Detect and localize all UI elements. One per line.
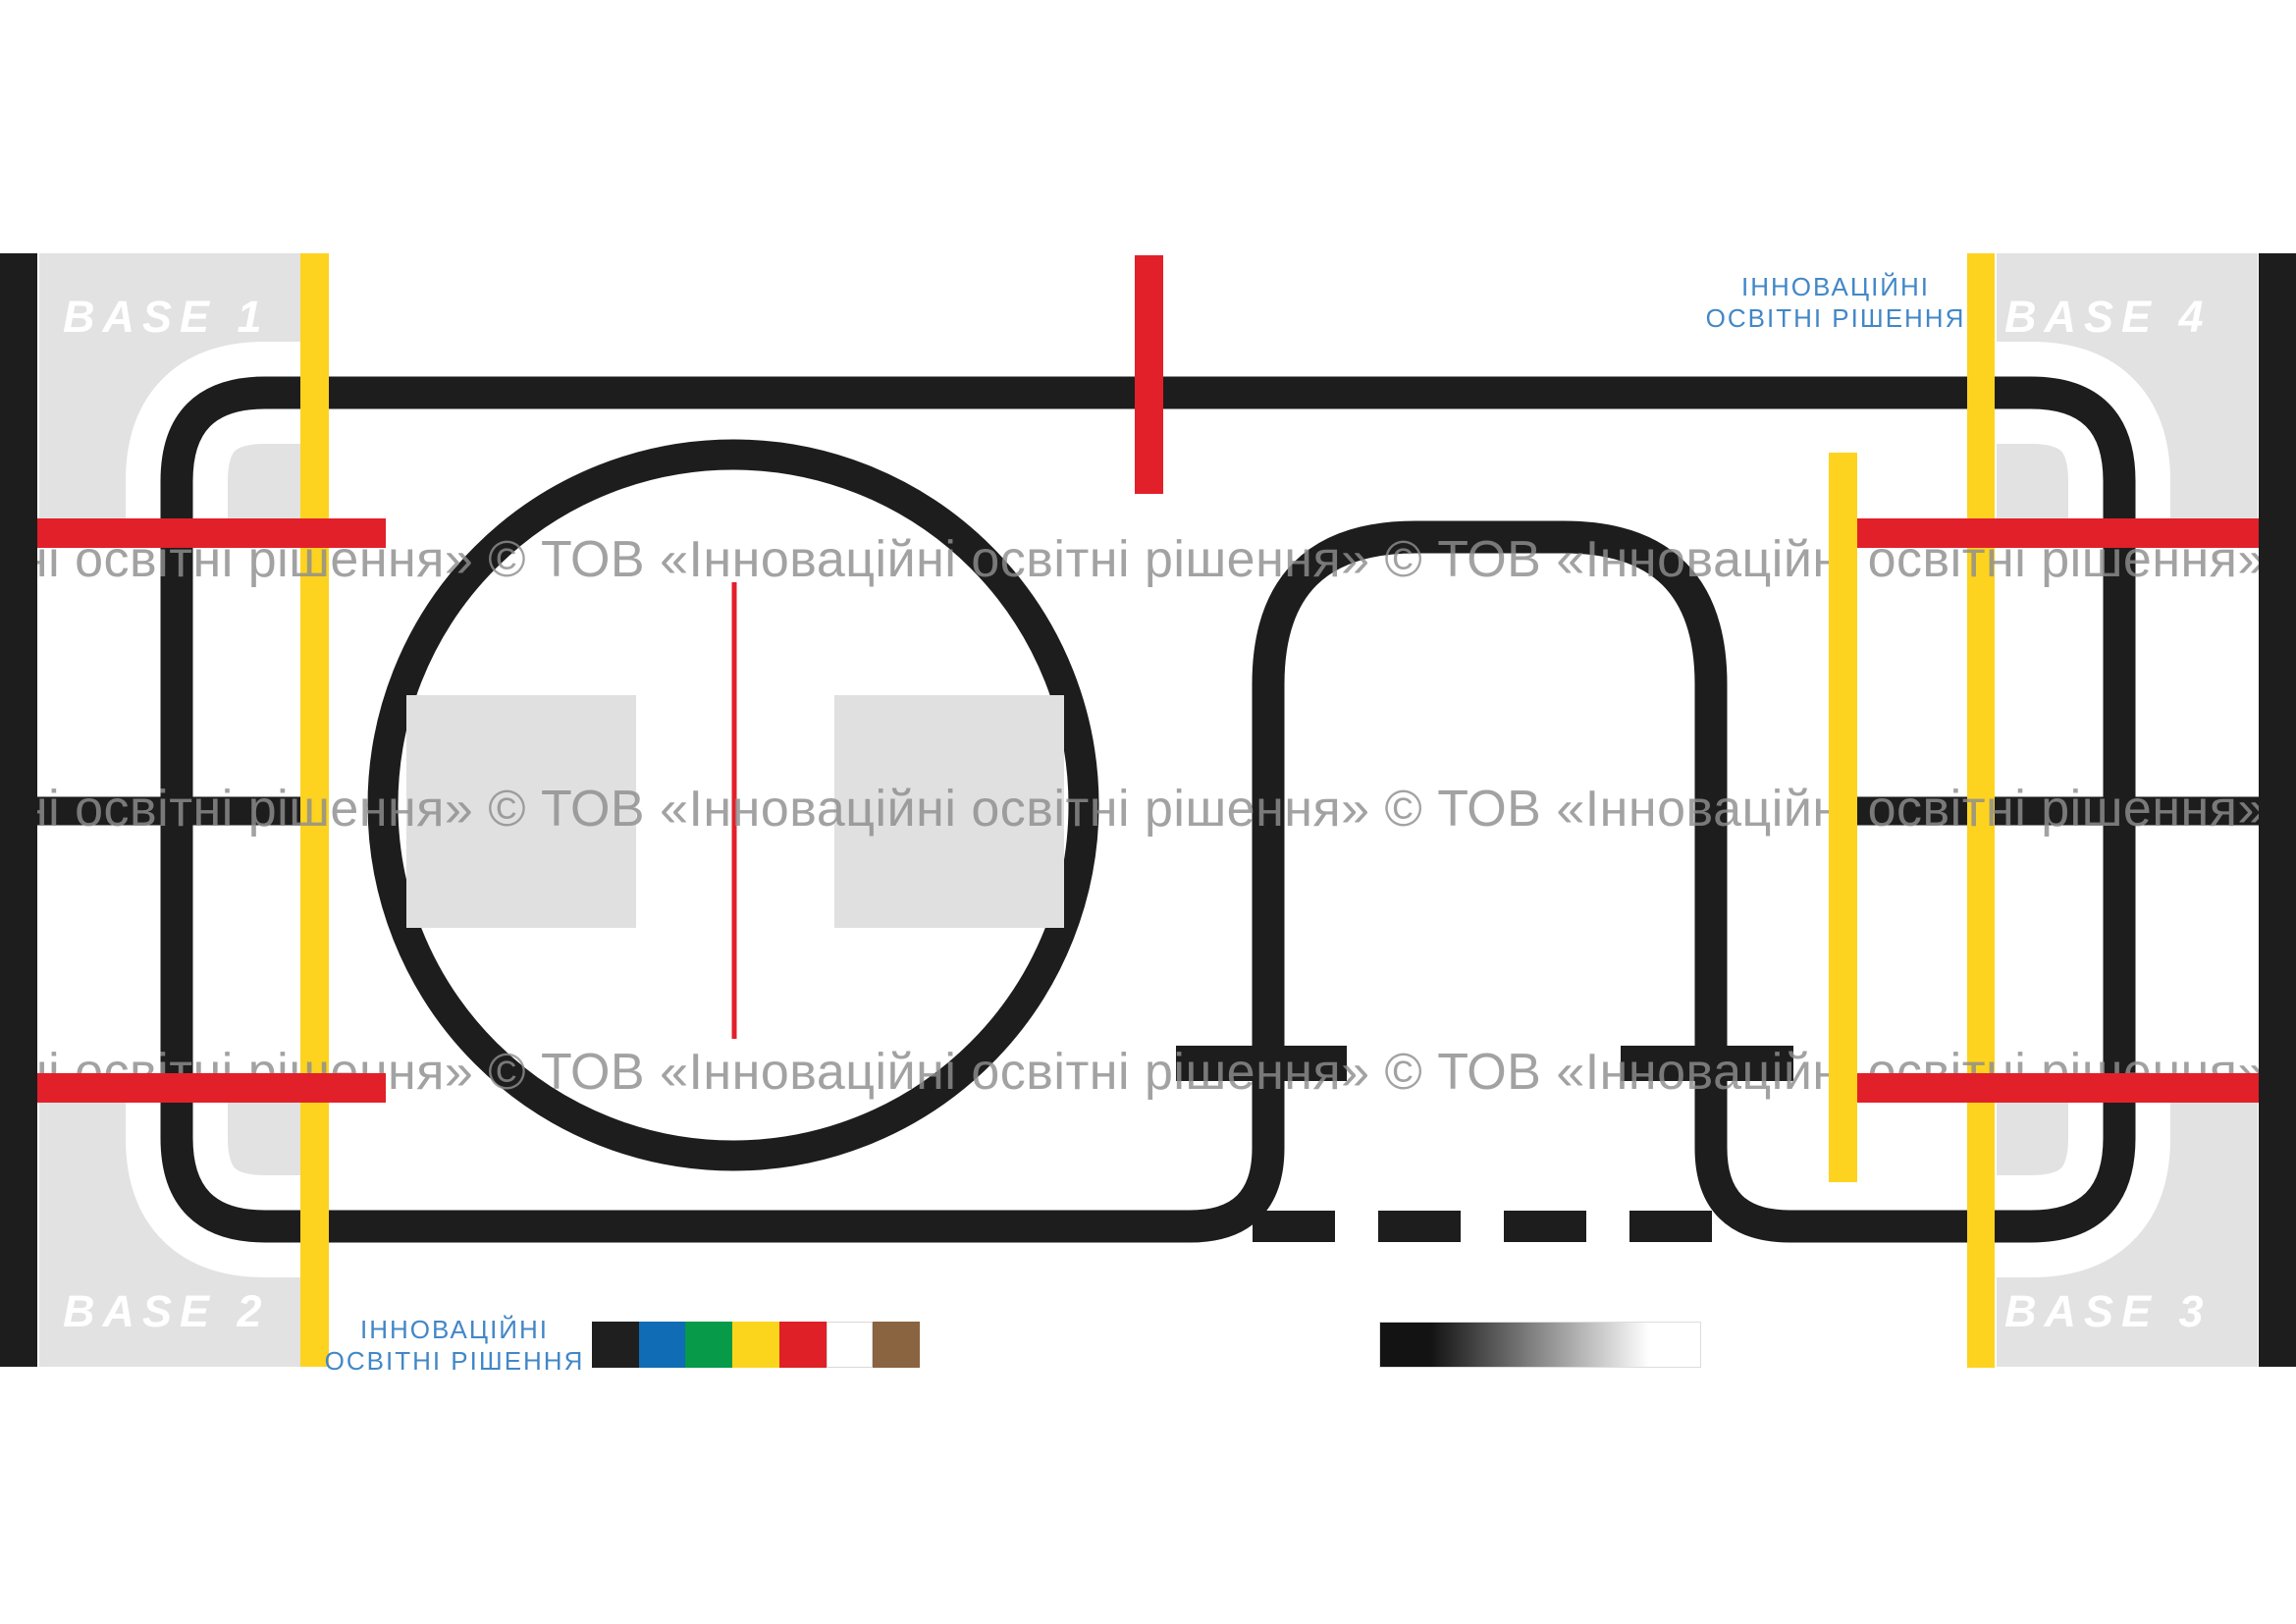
swatch-red [779, 1322, 827, 1368]
swatch-black [592, 1322, 639, 1368]
right-edge-black-bar [2259, 253, 2296, 1367]
grayscale-calibration-strip [1379, 1322, 1701, 1368]
red-line-top-left [37, 518, 386, 548]
left-edge-black-bar [0, 253, 37, 1367]
swatch-green [685, 1322, 732, 1368]
swatch-brown [873, 1322, 920, 1368]
base-3-label: BASE 3 [2004, 1286, 2212, 1337]
red-vertical-bar-top [1135, 255, 1163, 494]
red-line-bottom-left [37, 1073, 386, 1103]
red-line-bottom-right [1829, 1073, 2259, 1103]
color-calibration-strip [592, 1322, 920, 1368]
publisher-logo-top-right: ІННОВАЦІЙНІ ОСВІТНІ РІШЕННЯ [1629, 271, 2042, 334]
swatch-yellow [732, 1322, 779, 1368]
red-line-top-right [1829, 518, 2259, 548]
base-2-label: BASE 2 [63, 1286, 270, 1337]
logo-line-2: ОСВІТНІ РІШЕННЯ [1629, 302, 2042, 334]
yellow-bar-middle [1829, 453, 1857, 1182]
swatch-blue [639, 1322, 686, 1368]
logo-line-1: ІННОВАЦІЙНІ [1629, 271, 2042, 302]
base-1-label: BASE 1 [63, 292, 270, 343]
swatch-white [827, 1322, 874, 1368]
competition-field-mat: ційні освітні рішення» © ТОВ «Інноваційн… [0, 0, 2296, 1624]
field-graphics-upper [0, 0, 2296, 1624]
